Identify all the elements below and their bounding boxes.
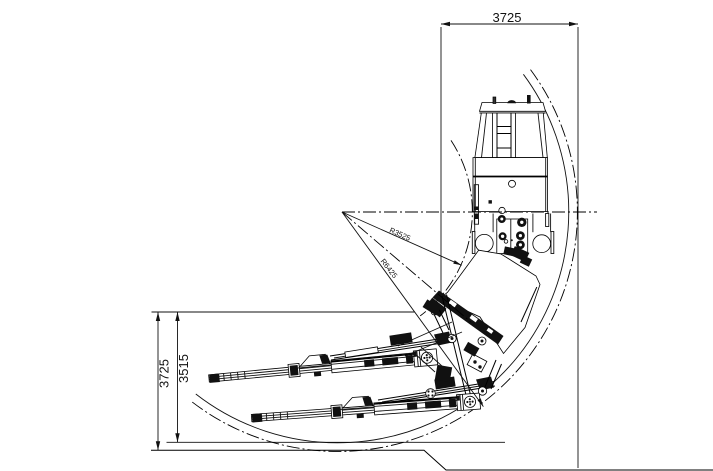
svg-text:3725: 3725 bbox=[157, 359, 172, 388]
svg-text:3515: 3515 bbox=[176, 354, 191, 383]
svg-text:3725: 3725 bbox=[493, 10, 522, 25]
